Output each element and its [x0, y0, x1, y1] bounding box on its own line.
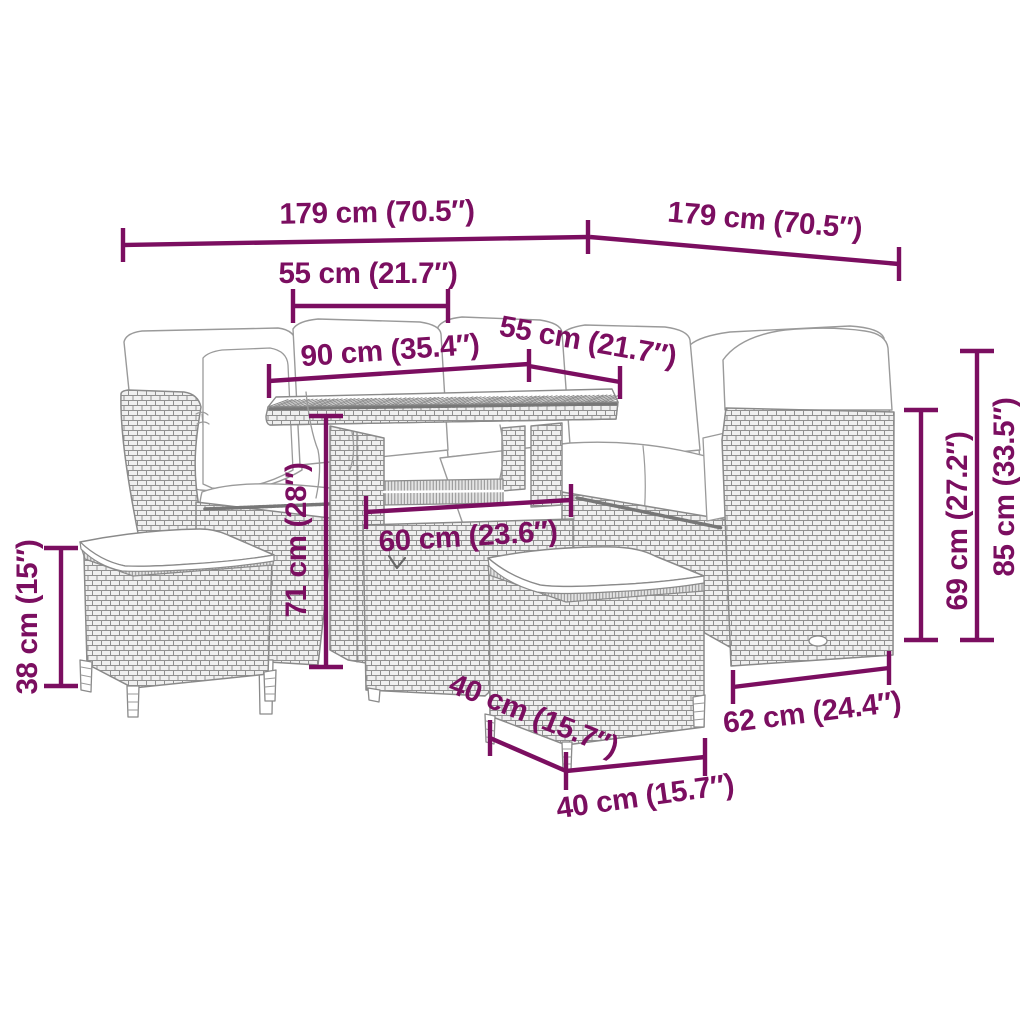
svg-text:55 cm (21.7″): 55 cm (21.7″): [278, 257, 457, 290]
svg-text:71 cm (28″): 71 cm (28″): [280, 462, 313, 617]
svg-text:179 cm (70.5″): 179 cm (70.5″): [279, 194, 475, 230]
svg-text:69 cm (27.2″): 69 cm (27.2″): [941, 431, 974, 610]
svg-text:38 cm (15″): 38 cm (15″): [11, 539, 44, 694]
svg-text:85 cm (33.5″): 85 cm (33.5″): [988, 397, 1021, 576]
